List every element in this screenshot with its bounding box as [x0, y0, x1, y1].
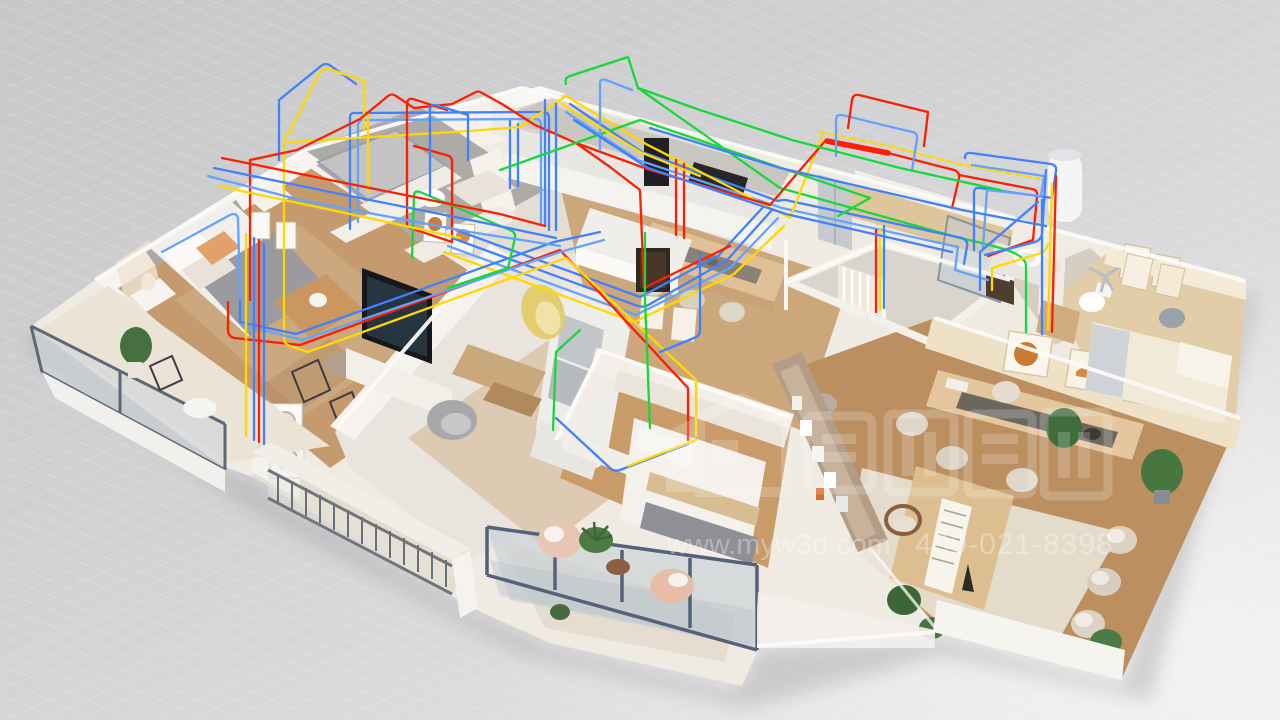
svg-text:400-021-8398: 400-021-8398	[915, 528, 1114, 561]
svg-text:www.myw3d.com: www.myw3d.com	[666, 529, 891, 561]
